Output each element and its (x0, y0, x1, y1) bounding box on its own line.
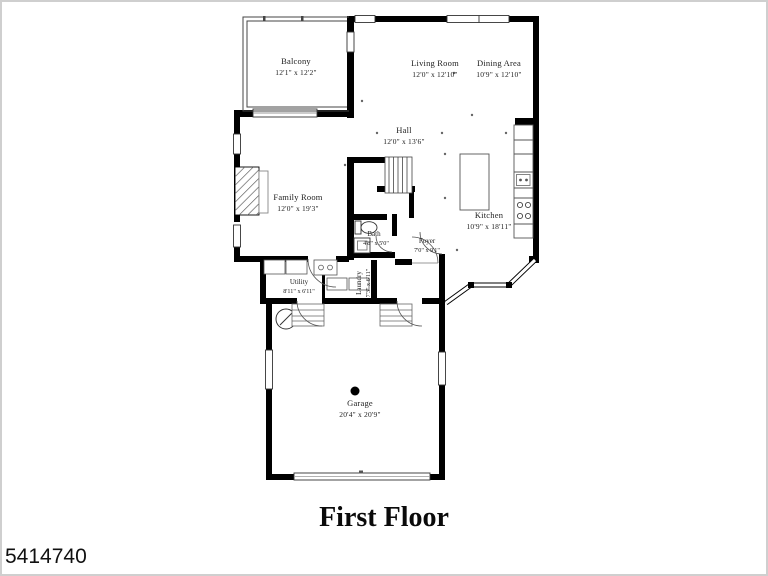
exterior-and-interior-walls (234, 16, 539, 480)
room-label-utility: Utility (290, 278, 309, 286)
kitchen-sink-icon (517, 175, 531, 186)
laundry-sink-icon (314, 260, 337, 275)
room-label-laundry: Laundry (355, 271, 363, 295)
garage-details (276, 304, 430, 480)
listing-id: 5414740 (5, 545, 87, 569)
room-dims-laundry: 7'3" x 6'11" (365, 268, 372, 297)
floorplan-page: Balcony 12'1" x 12'2" Living Room 12'0" … (0, 0, 768, 576)
fireplace (235, 167, 268, 215)
room-label-living-room: Living Room (411, 58, 459, 68)
washer-icon (327, 278, 347, 290)
room-label-garage: Garage (347, 398, 373, 408)
room-dims-foyer: 7'0" x 9'1" (414, 247, 440, 254)
room-dims-dining-area: 10'9" x 12'10" (476, 70, 521, 79)
room-dims-bath: 4'8" x 5'0" (363, 240, 389, 247)
garage-door (294, 471, 430, 481)
room-label-foyer: Foyer (419, 237, 436, 245)
room-label-kitchen: Kitchen (475, 210, 504, 220)
utility-laundry-fixtures (264, 260, 369, 290)
room-label-dining-area: Dining Area (477, 58, 521, 68)
bay-window (446, 260, 535, 303)
balcony-sliding-door (253, 109, 317, 117)
plan-title: First Floor (2, 502, 766, 534)
room-dims-hall: 12'0" x 13'6" (383, 137, 424, 146)
floorplan-drawing: Balcony 12'1" x 12'2" Living Room 12'0" … (2, 2, 768, 576)
staircase (385, 157, 412, 193)
room-dims-garage: 20'4" x 20'9" (339, 410, 380, 419)
kitchen-island (460, 154, 489, 210)
room-dims-kitchen: 10'9" x 18'11" (466, 222, 511, 231)
room-dims-utility: 8'11" x 6'11" (283, 288, 315, 295)
room-label-bath: Bath (367, 230, 381, 238)
room-dims-balcony: 12'1" x 12'2" (275, 68, 316, 77)
room-label-family-room: Family Room (273, 192, 322, 202)
room-dims-family-room: 12'0" x 19'3" (277, 204, 318, 213)
room-dims-living-room: 12'0" x 12'10" (412, 70, 457, 79)
toilet-tank-icon (355, 221, 361, 234)
hearth (259, 171, 268, 213)
room-label-balcony: Balcony (281, 56, 311, 66)
support-column (351, 387, 360, 396)
room-label-hall: Hall (396, 125, 412, 135)
